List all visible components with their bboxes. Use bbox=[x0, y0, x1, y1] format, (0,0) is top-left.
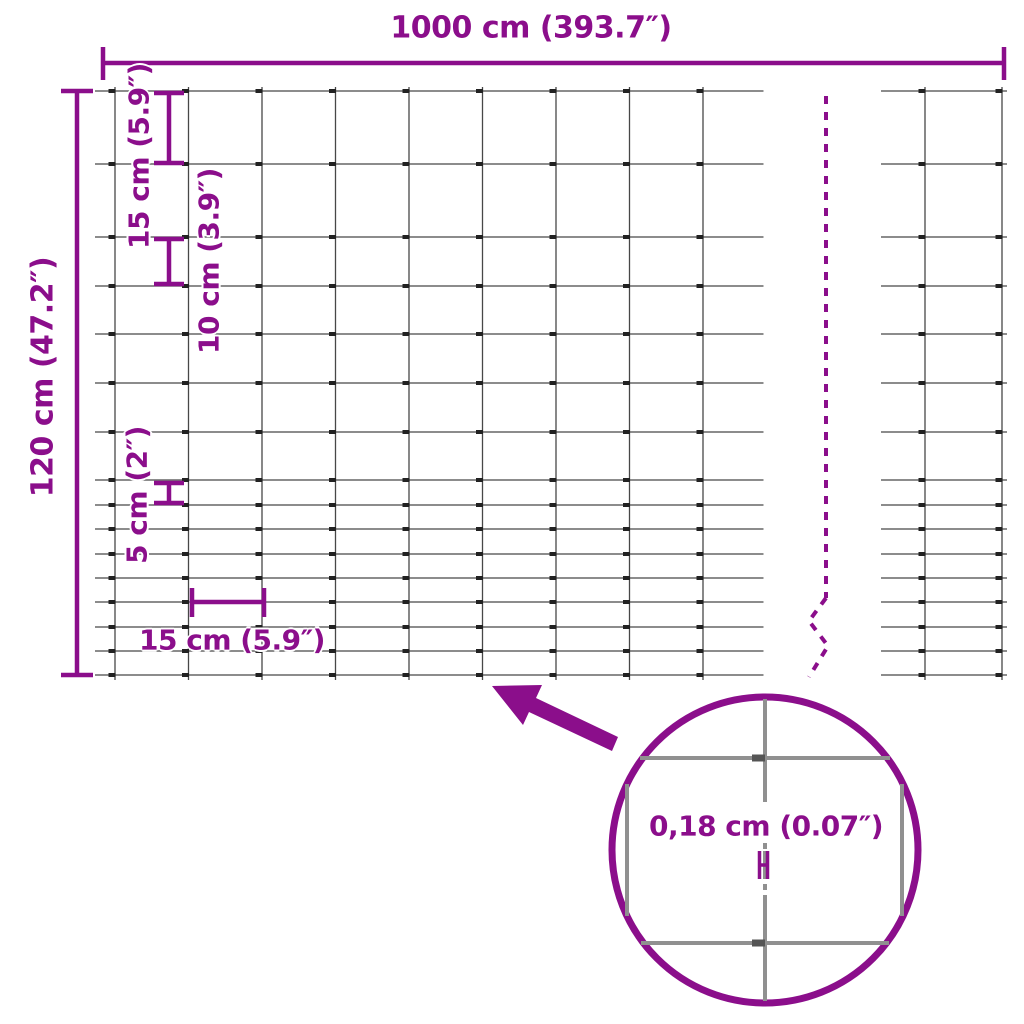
wire-clamp bbox=[476, 673, 483, 677]
wire-clamp bbox=[697, 332, 704, 336]
wire-clamp bbox=[109, 600, 116, 604]
wire-clamp bbox=[550, 649, 557, 653]
wire-clamp bbox=[329, 649, 336, 653]
wire-clamp bbox=[476, 89, 483, 93]
wire-clamp bbox=[403, 89, 410, 93]
row-spacing-10-label: 10 cm (3.9″) bbox=[193, 168, 226, 354]
wire-clamp bbox=[996, 235, 1003, 239]
wire-clamp bbox=[329, 503, 336, 507]
wire-clamp bbox=[403, 381, 410, 385]
wire-clamp bbox=[182, 430, 189, 434]
wire-clamp bbox=[403, 673, 410, 677]
wire-clamp bbox=[919, 89, 926, 93]
wire-clamp bbox=[329, 576, 336, 580]
wire-clamp bbox=[109, 284, 116, 288]
wire-clamp bbox=[109, 430, 116, 434]
dimension-lines bbox=[61, 47, 1004, 675]
wire-clamp bbox=[697, 235, 704, 239]
wire-clamp bbox=[623, 673, 630, 677]
wire-clamp bbox=[403, 649, 410, 653]
wire-clamp bbox=[919, 552, 926, 556]
wire-clamp bbox=[919, 673, 926, 677]
wire-clamp bbox=[996, 576, 1003, 580]
wire-clamp bbox=[697, 673, 704, 677]
wire-clamp bbox=[403, 162, 410, 166]
wire-clamp bbox=[109, 332, 116, 336]
row-spacing-15-label: 15 cm (5.9″) bbox=[123, 63, 156, 249]
wire-clamp bbox=[697, 162, 704, 166]
callout-arrow-icon bbox=[492, 685, 618, 751]
wire-clamp bbox=[403, 552, 410, 556]
wire-clamp bbox=[550, 625, 557, 629]
wire-clamp bbox=[476, 503, 483, 507]
wire-clamp bbox=[919, 162, 926, 166]
wire-clamp bbox=[329, 89, 336, 93]
wire-clamp bbox=[476, 430, 483, 434]
wire-clamp bbox=[329, 430, 336, 434]
wire-clamp bbox=[697, 527, 704, 531]
zoomed-wire-clamp-bottom bbox=[752, 940, 765, 947]
wire-clamp bbox=[256, 673, 263, 677]
wire-clamp bbox=[697, 381, 704, 385]
wire-clamp bbox=[623, 527, 630, 531]
wire-clamp bbox=[109, 527, 116, 531]
wire-thickness-label: 0,18 cm (0.07″) bbox=[649, 810, 883, 843]
wire-clamp bbox=[182, 527, 189, 531]
wire-clamp bbox=[256, 89, 263, 93]
wire-clamp bbox=[996, 332, 1003, 336]
row-spacing-15-marker bbox=[154, 93, 184, 163]
wire-clamp bbox=[697, 284, 704, 288]
wire-clamp bbox=[550, 600, 557, 604]
wire-clamp bbox=[996, 478, 1003, 482]
wire-clamp bbox=[550, 673, 557, 677]
wire-clamp bbox=[623, 235, 630, 239]
wire-clamp bbox=[329, 625, 336, 629]
wire-clamp bbox=[550, 430, 557, 434]
wire-clamp bbox=[623, 332, 630, 336]
wire-clamp bbox=[623, 552, 630, 556]
wire-clamp bbox=[623, 162, 630, 166]
wire-clamp bbox=[996, 284, 1003, 288]
wire-clamp bbox=[109, 235, 116, 239]
wire-clamp bbox=[403, 235, 410, 239]
wire-clamp bbox=[550, 503, 557, 507]
wire-clamp bbox=[996, 552, 1003, 556]
wire-clamp bbox=[329, 332, 336, 336]
wire-clamp bbox=[697, 89, 704, 93]
wire-clamp bbox=[919, 478, 926, 482]
wire-clamp bbox=[919, 503, 926, 507]
wire-clamp bbox=[996, 381, 1003, 385]
left-height-dimension-line bbox=[61, 91, 93, 675]
wire-clamp bbox=[109, 381, 116, 385]
wire-clamp bbox=[550, 552, 557, 556]
wire-clamp bbox=[403, 625, 410, 629]
wire-clamp bbox=[919, 625, 926, 629]
wire-clamp bbox=[182, 552, 189, 556]
wire-clamp bbox=[697, 430, 704, 434]
wire-clamp bbox=[550, 576, 557, 580]
wire-clamp bbox=[623, 284, 630, 288]
wire-clamp bbox=[919, 284, 926, 288]
wire-clamp bbox=[476, 527, 483, 531]
wire-clamp bbox=[623, 503, 630, 507]
wire-clamp bbox=[550, 332, 557, 336]
wire-clamp bbox=[256, 162, 263, 166]
wire-clamp bbox=[919, 332, 926, 336]
wire-clamp bbox=[623, 600, 630, 604]
wire-clamp bbox=[623, 649, 630, 653]
wire-clamp bbox=[697, 576, 704, 580]
wire-clamp bbox=[403, 527, 410, 531]
wire-clamp bbox=[996, 600, 1003, 604]
wire-clamp bbox=[996, 673, 1003, 677]
wire-clamp bbox=[109, 673, 116, 677]
wire-clamp bbox=[996, 649, 1003, 653]
wire-clamp bbox=[623, 625, 630, 629]
wire-clamp bbox=[697, 503, 704, 507]
wire-clamp bbox=[996, 527, 1003, 531]
wire-clamp bbox=[403, 430, 410, 434]
wire-clamp bbox=[256, 235, 263, 239]
wire-clamp bbox=[403, 503, 410, 507]
wire-clamp bbox=[996, 430, 1003, 434]
total-width-label: 1000 cm (393.7″) bbox=[390, 11, 671, 46]
wire-clamp bbox=[623, 381, 630, 385]
wire-clamp bbox=[109, 162, 116, 166]
wire-clamp bbox=[919, 576, 926, 580]
wire-clamp bbox=[109, 89, 116, 93]
wire-clamp bbox=[109, 625, 116, 629]
wire-clamp bbox=[329, 284, 336, 288]
wire-clamp bbox=[256, 503, 263, 507]
wire-clamp bbox=[550, 381, 557, 385]
wire-clamp bbox=[109, 552, 116, 556]
wire-clamp bbox=[550, 527, 557, 531]
break-dashed-line bbox=[809, 96, 828, 677]
wire-clamp bbox=[550, 284, 557, 288]
wire-clamp bbox=[476, 381, 483, 385]
wire-clamp bbox=[623, 576, 630, 580]
wire-clamp bbox=[109, 576, 116, 580]
wire-clamp bbox=[329, 478, 336, 482]
wire-clamp bbox=[550, 162, 557, 166]
wire-clamp bbox=[919, 600, 926, 604]
wire-clamp bbox=[476, 235, 483, 239]
wire-clamp bbox=[697, 600, 704, 604]
wire-clamp bbox=[697, 625, 704, 629]
wire-clamp bbox=[329, 673, 336, 677]
wire-clamp bbox=[550, 235, 557, 239]
wire-clamp bbox=[697, 478, 704, 482]
wire-clamp bbox=[329, 162, 336, 166]
wire-clamp bbox=[623, 430, 630, 434]
row-spacing-10-marker bbox=[154, 239, 184, 284]
wire-clamp bbox=[403, 600, 410, 604]
column-spacing-marker bbox=[192, 588, 264, 617]
wire-clamp bbox=[623, 478, 630, 482]
wire-clamp bbox=[476, 625, 483, 629]
wire-clamp bbox=[996, 625, 1003, 629]
zoomed-wire-clamp-top bbox=[752, 755, 765, 762]
wire-clamp bbox=[996, 89, 1003, 93]
column-spacing-label: 15 cm (5.9″) bbox=[139, 624, 325, 657]
wire-clamp bbox=[919, 430, 926, 434]
wire-clamp bbox=[476, 478, 483, 482]
wire-clamp bbox=[697, 552, 704, 556]
wire-clamp bbox=[550, 478, 557, 482]
wire-clamp bbox=[919, 649, 926, 653]
fence-dimension-diagram: 1000 cm (393.7″) 120 cm (47.2″) 15 cm (5… bbox=[0, 0, 1024, 1024]
wire-clamp bbox=[919, 381, 926, 385]
wire-clamp bbox=[256, 284, 263, 288]
wire-clamp bbox=[256, 576, 263, 580]
wire-clamp bbox=[329, 600, 336, 604]
wire-clamp bbox=[623, 89, 630, 93]
wire-clamp bbox=[919, 235, 926, 239]
wire-clamp bbox=[697, 649, 704, 653]
wire-clamp bbox=[919, 527, 926, 531]
wire-clamp bbox=[476, 162, 483, 166]
wire-clamp bbox=[476, 576, 483, 580]
wire-clamp bbox=[476, 284, 483, 288]
wire-clamp bbox=[182, 332, 189, 336]
wire-clamp bbox=[256, 430, 263, 434]
row-spacing-5-marker bbox=[154, 483, 184, 503]
wire-clamp bbox=[996, 503, 1003, 507]
wire-clamp bbox=[256, 478, 263, 482]
wire-clamp bbox=[256, 332, 263, 336]
wire-clamp bbox=[182, 600, 189, 604]
wire-clamp bbox=[403, 332, 410, 336]
wire-clamp bbox=[182, 673, 189, 677]
wire-clamp bbox=[476, 552, 483, 556]
wire-clamp bbox=[329, 527, 336, 531]
wire-clamp bbox=[329, 381, 336, 385]
wire-clamp bbox=[329, 235, 336, 239]
wire-clamp bbox=[476, 649, 483, 653]
zoom-detail-circle bbox=[612, 697, 918, 1003]
top-width-dimension-line bbox=[103, 47, 1004, 80]
wire-clamp bbox=[182, 381, 189, 385]
wire-clamp bbox=[109, 478, 116, 482]
wire-clamp bbox=[403, 478, 410, 482]
total-height-label: 120 cm (47.2″) bbox=[26, 257, 61, 497]
break-zigzag bbox=[809, 598, 828, 677]
wire-clamp bbox=[403, 576, 410, 580]
wire-clamp bbox=[996, 162, 1003, 166]
wire-clamp bbox=[403, 284, 410, 288]
wire-clamp bbox=[550, 89, 557, 93]
row-spacing-5-label: 5 cm (2″) bbox=[121, 426, 154, 564]
wire-clamp bbox=[476, 600, 483, 604]
wire-clamp bbox=[476, 332, 483, 336]
wire-clamp bbox=[256, 552, 263, 556]
wire-clamp bbox=[109, 649, 116, 653]
wire-clamp bbox=[256, 381, 263, 385]
wire-clamp bbox=[329, 552, 336, 556]
wire-mesh-grid bbox=[95, 87, 1007, 680]
wire-clamp bbox=[109, 503, 116, 507]
wire-clamp bbox=[256, 527, 263, 531]
wire-clamp bbox=[182, 576, 189, 580]
